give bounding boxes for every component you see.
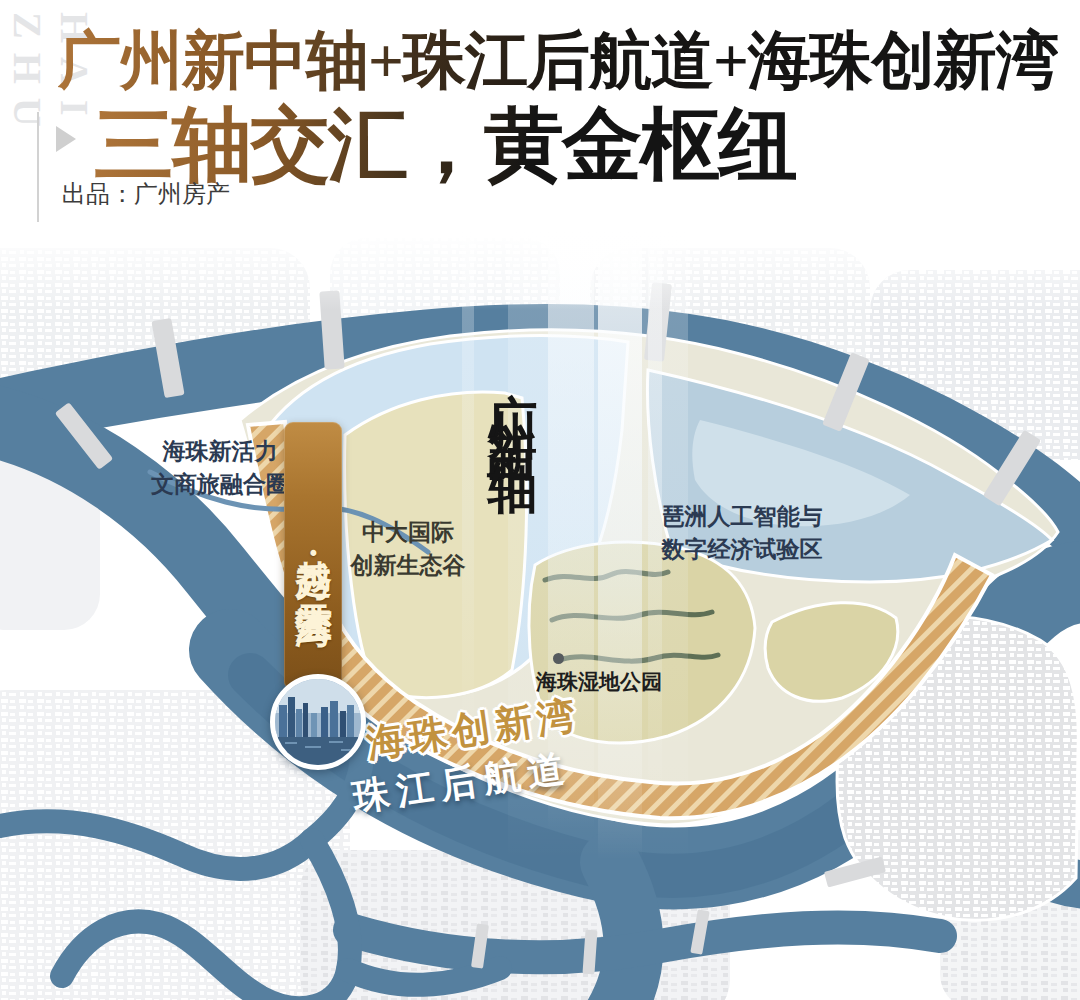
axis-label: 广州新中轴 <box>480 352 547 442</box>
zone-label-cuhk-line1: 中大国际 <box>328 516 488 549</box>
byline: 出品：广州房产 <box>62 178 230 210</box>
header-divider <box>37 112 39 222</box>
map-top-fade <box>0 230 1080 310</box>
wetland-dot-icon <box>553 653 564 664</box>
project-marker-icon <box>270 674 366 770</box>
project-banner-label: 越秀·天荟江湾 <box>288 531 338 579</box>
zone-label-pazhou-line1: 琶洲人工智能与 <box>652 500 832 533</box>
zone-label-cuhk-line2: 创新生态谷 <box>328 549 488 582</box>
zone-label-cuhk: 中大国际 创新生态谷 <box>328 516 488 583</box>
map-canvas: 海珠新活力 文商旅融合圈 中大国际 创新生态谷 广州新中轴 海珠湿地公园 琶洲人… <box>0 230 1080 1000</box>
header-triangle-icon <box>56 126 76 152</box>
wetland-label: 海珠湿地公园 <box>524 668 674 696</box>
zone-label-pazhou: 琶洲人工智能与 数字经济试验区 <box>652 500 832 567</box>
zone-label-pazhou-line2: 数字经济试验区 <box>652 533 832 566</box>
project-banner: 越秀·天荟江湾 <box>284 422 342 688</box>
city-skyline-icon <box>275 679 361 765</box>
map-artwork <box>0 230 1080 1000</box>
